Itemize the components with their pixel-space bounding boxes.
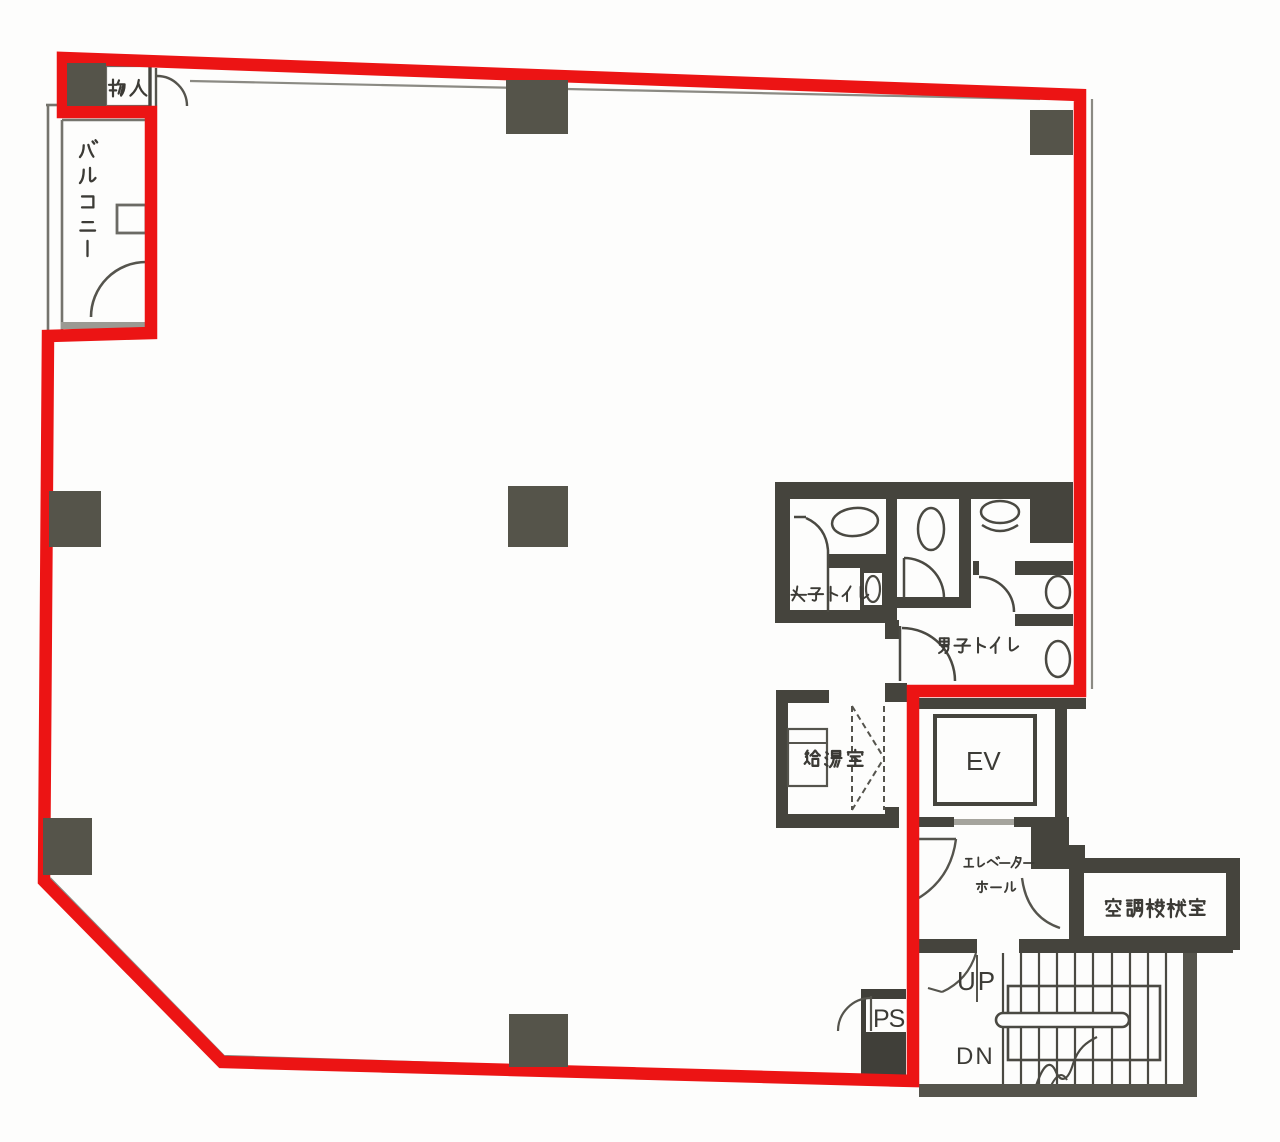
- svg-text:PS: PS: [873, 1005, 905, 1033]
- svg-text:UP: UP: [957, 966, 997, 996]
- svg-text:DN: DN: [956, 1043, 995, 1070]
- svg-text:EV: EV: [966, 746, 1001, 776]
